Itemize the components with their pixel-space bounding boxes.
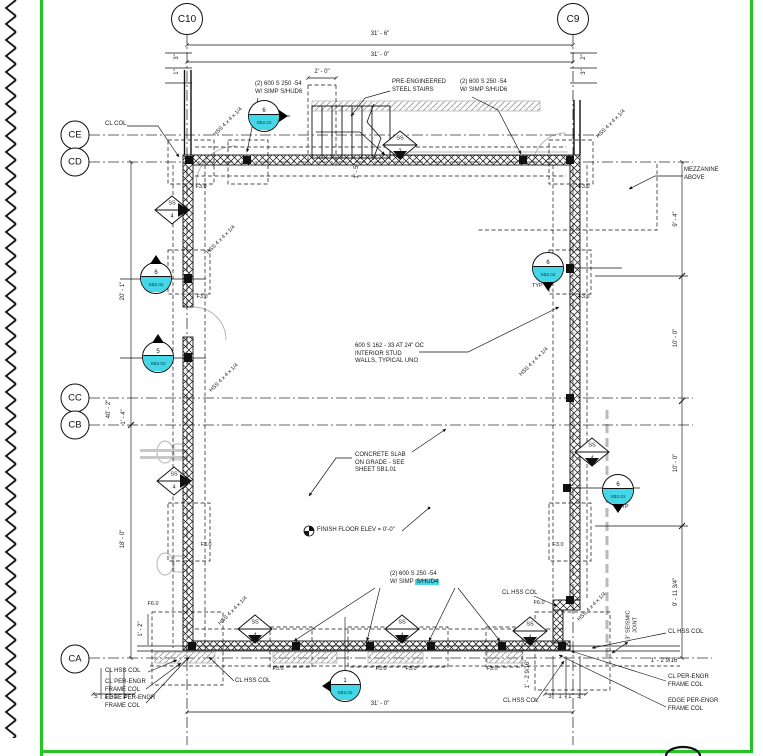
label-cl-hss-col: CL HSS COL [668, 629, 703, 635]
note-line: W/ SIMP S/HUD4 [390, 579, 439, 587]
label-edge-per-engr-frame-col: EDGE PER-ENGR FRAME COL [668, 698, 718, 713]
note-line: 3" SEISMIC [626, 610, 633, 639]
note-line: JOINT [632, 610, 639, 639]
section-sheet: SB2.02 [603, 489, 633, 504]
section-pointer-icon [150, 255, 162, 264]
section-number: 1 [330, 671, 360, 685]
note-stairs: PRE-ENGINEERED STEEL STAIRS [392, 79, 446, 94]
dim-stair-width: 1' - 5" [354, 163, 360, 178]
diamond-detail-letter: SS [251, 620, 258, 626]
grid-label: CE [68, 130, 81, 141]
note-stud-pack-bottom: (2) 600 S 250 -54 W/ SIMP S/HUD4 [390, 571, 439, 586]
mezzanine-outline [478, 164, 657, 230]
note-line: (2) 600 S 250 -54 [390, 571, 439, 579]
note-line: W/ SIMP S/HUD6 [460, 87, 507, 95]
note-line: CONCRETE SLAB [355, 452, 406, 460]
diamond-detail-letter: SS [588, 443, 595, 449]
section-sheet: SB2.02 [533, 267, 563, 282]
architectural-background [140, 101, 607, 665]
note-line: FRAME COL [105, 687, 146, 695]
footing-label-f30: F3.0 [272, 666, 283, 672]
grid-bubble-cb: CB [61, 411, 90, 440]
wall-right-stub [553, 610, 563, 643]
note-line: MEZZANINE [684, 167, 719, 175]
diamond-detail-letter: SS [170, 472, 177, 478]
torn-edge-zigzag [4, 0, 22, 738]
diamond-detail-letter: SS [396, 136, 403, 142]
section-sheet: SB2.02 [143, 356, 173, 371]
grid-label: CD [68, 157, 82, 168]
note-line: CL PER-ENGR [668, 674, 709, 682]
label-cl-hss-col: CL HSS COL [502, 590, 537, 596]
note-line: W/ SIMP S/HUD6 [255, 89, 302, 97]
dim-tick: 3" [581, 69, 587, 74]
section-number: 6 [249, 101, 279, 115]
dim-bottom: 31' - 0" [371, 701, 390, 707]
note-line: WALLS, TYPICAL UNO [355, 358, 424, 366]
footing-label-f30: F3.0 [578, 184, 589, 190]
label-cl-per-engr-frame-col: CL PER-ENGR FRAME COL [105, 679, 146, 694]
dim-left-small: 1' - 4" [121, 409, 127, 424]
note-line: CL PER-ENGR [105, 679, 146, 687]
footing-label-f30: F3.0 [578, 294, 589, 300]
note-line: (2) 600 S 250 -54 [460, 79, 507, 87]
section-pointer-icon [152, 334, 164, 343]
diamond-detail-number: 4 [528, 635, 531, 641]
wall-left-lower [183, 337, 193, 650]
plan-linework [0, 0, 763, 756]
note-line: FRAME COL [668, 706, 718, 714]
diamond-detail-number: 4 [253, 633, 256, 639]
dim-br: 1' - 2 9/16" [525, 660, 531, 689]
grid-bubble-c9: C9 [557, 3, 589, 35]
note-line: 600 S 162 - 33 AT 24" OC [355, 343, 424, 351]
label-cl-hss-col: CL HSS COL [503, 698, 538, 704]
note-line: ABOVE [684, 175, 719, 183]
note-line: EDGE PER-ENGR [105, 695, 155, 703]
section-pointer-icon [612, 504, 624, 513]
fixture-toilet-tank [174, 556, 183, 572]
dim-right-3: 10' - 0" [673, 454, 679, 473]
dim-left-upper: 20' - 1" [120, 282, 126, 301]
footing-label-f60: F6.0 [533, 600, 544, 606]
footing-label-f30: F3.0 [196, 294, 207, 300]
note-line: FRAME COL [105, 703, 155, 711]
section-sheet: SB2.02 [330, 685, 360, 700]
fixture-toilet-bowl [157, 553, 173, 575]
grid-bubble-cd: CD [61, 148, 90, 177]
diamond-detail-number: 4 [170, 214, 173, 220]
dim-tick: 1" [174, 69, 180, 74]
note-line: (2) 600 S 250 -54 [255, 81, 302, 89]
section-pointer-icon [279, 110, 288, 122]
label-edge-per-engr-frame-col: EDGE PER-ENGR FRAME COL [105, 695, 155, 710]
grid-label: CC [68, 393, 82, 404]
section-number: 6 [603, 475, 633, 489]
structural-plan-sheet: C10 C9 CE CD CC CB CA 31' - 6" 31' - 0" … [0, 0, 763, 756]
note-line: ON GRADE - SEE [355, 460, 406, 468]
section-callout: 6 SB2.02 [602, 474, 634, 506]
diamond-detail-letter: SS [168, 201, 175, 207]
stairs [312, 104, 390, 160]
dim-top-inner: 31' - 0" [371, 52, 390, 58]
detail-callout-diamonds [155, 131, 609, 645]
section-callout: 6 SB2.02 [532, 252, 564, 284]
wall-right [570, 155, 580, 600]
label-cl-per-engr-frame-col: CL PER-ENGR FRAME COL [668, 674, 709, 689]
dim-br: 1' - 2 9/16" [651, 658, 680, 664]
dim-stair-landing: 2' - 0" [314, 69, 329, 75]
dim-right-2: 10' - 0" [673, 329, 679, 348]
note-concrete-slab: CONCRETE SLAB ON GRADE - SEE SHEET SB1.0… [355, 452, 406, 475]
footing-label-f30: F3.0 [195, 184, 206, 190]
grid-label: CB [68, 420, 81, 431]
note-stud-pack-top-left: (2) 600 S 250 -54 W/ SIMP S/HUD6 [255, 81, 302, 96]
note-cl-col: CL COL [105, 121, 126, 127]
note-stud-pack-top-right: (2) 600 S 250 -54 W/ SIMP S/HUD6 [460, 79, 507, 94]
dim-left-overall: 40' - 2" [106, 400, 112, 419]
note-line: INTERIOR STUD [355, 351, 424, 359]
fixture-counter [140, 449, 187, 452]
note-seismic-joint: 3" SEISMIC JOINT [626, 610, 639, 639]
footing-label-f30: F3.0 [405, 666, 416, 672]
section-callout: 6 SB2.02 [140, 262, 172, 294]
dim-bl: 1' - 2" [138, 621, 144, 636]
diamond-detail-number: 4 [172, 485, 175, 491]
diamond-detail-number: 2 [398, 149, 401, 155]
grid-label: CA [68, 654, 81, 665]
section-pointer-icon [542, 282, 554, 291]
section-callout: 6 SB2.02 [248, 100, 280, 132]
note-line: SHEET SB1.01 [355, 467, 406, 475]
footing-label-f30: F3.0 [200, 542, 211, 548]
section-sheet: SB2.02 [249, 115, 279, 130]
label-cl-hss-col: CL HSS COL [235, 678, 270, 684]
dim-right-4: 9' - 11 3/4" [673, 578, 679, 606]
grid-bubble-ca: CA [61, 645, 90, 674]
dim-right-1: 9' - 4" [673, 211, 679, 226]
footing-label-f30: F3.0 [552, 542, 563, 548]
note-interior-stud-walls: 600 S 162 - 33 AT 24" OC INTERIOR STUD W… [355, 343, 424, 366]
section-number: 6 [533, 253, 563, 267]
note-highlighted-text: S/HUD4 [415, 579, 439, 585]
section-number: 6 [141, 263, 171, 277]
footing-label-f30: F3.0 [375, 666, 386, 672]
diamond-detail-letter: SS [526, 622, 533, 628]
grid-label: C10 [178, 14, 196, 25]
note-line: FRAME COL [668, 682, 709, 690]
footing-label-f30: F3.0 [486, 666, 497, 672]
section-number: 5 [143, 342, 173, 356]
grid-label: C9 [567, 14, 580, 25]
section-sheet: SB2.02 [141, 277, 171, 292]
label-cl-hss-col: CL HSS COL [105, 668, 140, 674]
wall-bottom [193, 641, 570, 650]
finish-floor-datum [304, 526, 314, 536]
fixture-counter [140, 456, 187, 459]
grid-bubble-cc: CC [61, 384, 90, 413]
dim-top-outer: 31' - 6" [371, 31, 390, 37]
note-text: W/ SIMP [390, 579, 415, 585]
column-points [184, 156, 574, 650]
wall-left-upper [183, 155, 193, 307]
grid-bubble-ce: CE [61, 121, 90, 150]
note-mezzanine: MEZZANINE ABOVE [684, 167, 719, 182]
note-line: STEEL STAIRS [392, 87, 446, 95]
grid-bubble-c10: C10 [171, 3, 203, 35]
dim-tick: 3" [174, 54, 180, 59]
dim-br: 3" [548, 694, 553, 700]
note-line: EDGE PER-ENGR [668, 698, 718, 706]
diamond-detail-letter: SS [398, 620, 405, 626]
footing-label-f60: F6.0 [147, 601, 158, 607]
dim-br: 1' - 1" [558, 694, 573, 700]
dim-br: 3" [577, 694, 582, 700]
section-pointer-icon [322, 680, 331, 692]
diamond-detail-number: 4 [400, 633, 403, 639]
section-callout: 1 SB2.02 [329, 670, 361, 702]
section-callout: 5 SB2.02 [142, 341, 174, 373]
dim-bl: 5" [94, 694, 99, 700]
note-line: PRE-ENGINEERED [392, 79, 446, 87]
stair-break-line [367, 104, 381, 160]
dim-tick: 2" [581, 54, 587, 59]
dim-left-lower: 18' - 0" [120, 530, 126, 549]
diamond-detail-number: 4 [590, 456, 593, 462]
note-finish-floor-elev: FINISH FLOOR ELEV = 0'-0" [317, 527, 395, 533]
